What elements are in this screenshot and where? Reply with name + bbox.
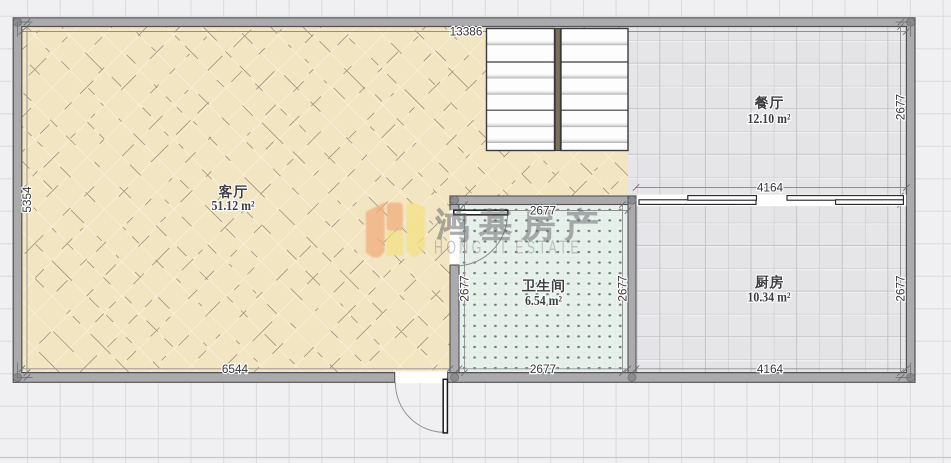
svg-text:2677: 2677 xyxy=(530,204,556,218)
svg-text:6.54 m²: 6.54 m² xyxy=(525,293,562,308)
svg-text:2677: 2677 xyxy=(616,275,630,301)
svg-text:13386: 13386 xyxy=(450,25,483,39)
svg-text:2677: 2677 xyxy=(894,94,908,120)
svg-text:2677: 2677 xyxy=(894,275,908,301)
svg-text:5354: 5354 xyxy=(20,186,34,213)
svg-text:10.34 m²: 10.34 m² xyxy=(748,290,791,305)
svg-text:51.12 m²: 51.12 m² xyxy=(212,198,255,213)
svg-text:12.10 m²: 12.10 m² xyxy=(748,111,791,126)
svg-text:2677: 2677 xyxy=(530,362,556,376)
svg-text:2677: 2677 xyxy=(458,275,472,301)
svg-text:HONG JI ESTATE: HONG JI ESTATE xyxy=(434,237,582,258)
svg-text:4164: 4164 xyxy=(757,181,784,195)
svg-text:4164: 4164 xyxy=(757,362,784,376)
svg-text:6544: 6544 xyxy=(222,362,249,376)
